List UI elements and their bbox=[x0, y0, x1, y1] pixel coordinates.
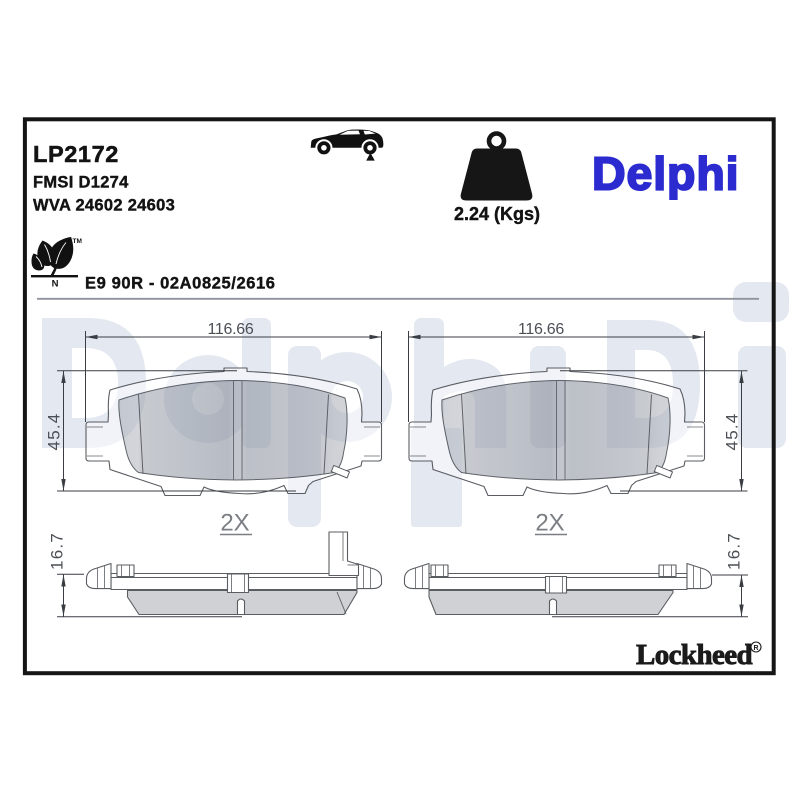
svg-text:E9 90R - 02A0825/2616: E9 90R - 02A0825/2616 bbox=[85, 275, 276, 293]
svg-text:16.7: 16.7 bbox=[48, 532, 67, 570]
svg-text:2X: 2X bbox=[220, 510, 249, 537]
svg-text:16.7: 16.7 bbox=[725, 532, 744, 570]
svg-text:116.66: 116.66 bbox=[208, 321, 254, 338]
svg-text:FMSI D1274: FMSI D1274 bbox=[33, 174, 129, 192]
svg-text:WVA 24602 24603: WVA 24602 24603 bbox=[33, 197, 175, 215]
svg-text:2X: 2X bbox=[535, 510, 564, 537]
svg-text:LP2172: LP2172 bbox=[33, 141, 119, 167]
svg-text:45.4: 45.4 bbox=[45, 413, 64, 451]
svg-text:2.24 (Kgs): 2.24 (Kgs) bbox=[454, 204, 540, 224]
svg-text:45.4: 45.4 bbox=[723, 413, 742, 451]
svg-text:N: N bbox=[52, 279, 59, 290]
svg-text:116.66: 116.66 bbox=[518, 321, 564, 338]
svg-text:Lockheed: Lockheed bbox=[636, 639, 753, 671]
svg-text:TM: TM bbox=[73, 238, 82, 245]
svg-text:Delphi: Delphi bbox=[592, 147, 740, 199]
svg-text:R: R bbox=[753, 645, 758, 652]
